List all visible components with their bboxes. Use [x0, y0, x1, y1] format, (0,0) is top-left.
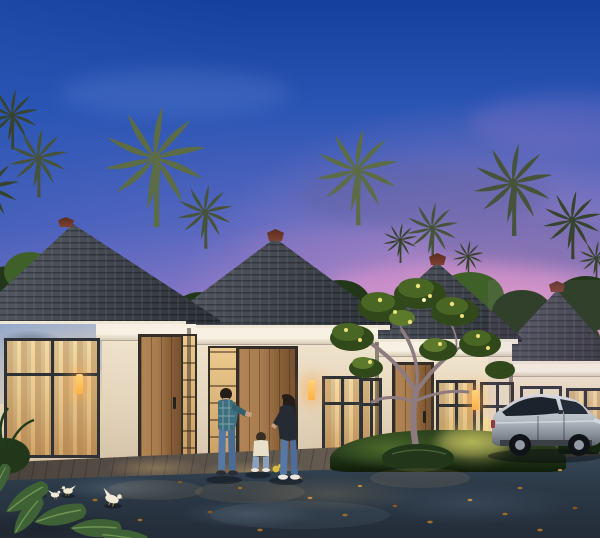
- tree-base-shrub: [382, 444, 454, 472]
- foreground-layer: [0, 0, 600, 538]
- toddler: [251, 432, 270, 472]
- foreground-leaves: [0, 462, 151, 538]
- frangipani-foliage: [330, 278, 515, 379]
- villa-dusk-render: [0, 0, 600, 538]
- car-taillight: [491, 420, 495, 428]
- man-in-plaid-shirt: [216, 388, 252, 476]
- figure-group: [206, 388, 303, 485]
- car-windows: [502, 397, 560, 416]
- frangipani-tree: [330, 278, 515, 472]
- car-mirror: [558, 410, 563, 414]
- car-silver-hatchback: [488, 394, 600, 463]
